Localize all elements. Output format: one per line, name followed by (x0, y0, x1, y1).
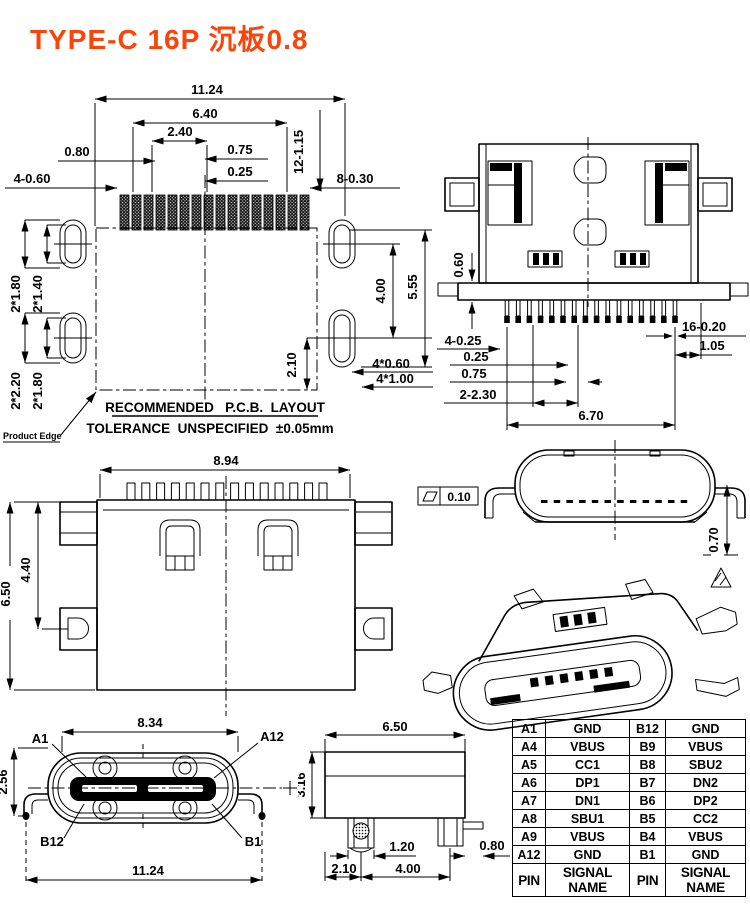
side-pin (463, 822, 483, 829)
mounting-hole-top-left (54, 220, 92, 268)
dim-0-80: 0.80 (479, 838, 504, 853)
table-row: A12 GND B1 GND (513, 846, 746, 864)
latch-spring-bottom (574, 219, 606, 245)
pin-cell: B12 (630, 720, 666, 738)
isometric-view (413, 562, 748, 739)
dim-2-10: 2.10 (284, 352, 299, 377)
flatness-value: 0.10 (447, 490, 471, 504)
pcb-dimensions: 11.24 6.40 2.40 0.80 0.75 0.25 12-1.15 4… (5, 82, 433, 410)
signal-cell: DN1 (546, 792, 630, 810)
signal-cell: GND (546, 720, 630, 738)
pin-label-b1: B1 (245, 834, 262, 849)
flatness-callout: 0.10 (418, 487, 478, 505)
iso-contacts (530, 667, 613, 687)
table-footer-row: PIN SIGNAL NAME PIN SIGNAL NAME (513, 864, 746, 897)
contact-dashes (541, 500, 687, 503)
pin-cell: B1 (630, 846, 666, 864)
side-dimensions-top: 6.50 (325, 719, 465, 752)
dim-5-55: 5.55 (405, 274, 420, 299)
bottom-view-dimensions: 0.60 4-0.25 0.25 0.75 2-2.30 6.70 16-0.2… (437, 252, 746, 430)
dim-4x0-60: 4*0.60 (372, 356, 410, 371)
top-view-dimensions-left: 4.40 6.50 (0, 502, 95, 690)
dim-6-40: 6.40 (192, 106, 217, 121)
pin-cell: A5 (513, 756, 546, 774)
pin-cell: A9 (513, 828, 546, 846)
dim-16-0-20: 16-0.20 (682, 319, 726, 334)
table-row: A4 VBUS B9 VBUS (513, 738, 746, 756)
side-dimensions-left: 3.16 (298, 752, 325, 818)
side-dimensions-bottom: 1.20 0.80 2.10 4.00 (325, 838, 510, 881)
signal-cell: DP1 (546, 774, 630, 792)
table-row: A1 GND B12 GND (513, 720, 746, 738)
dim-8-0-30: 8-0.30 (337, 171, 374, 186)
dim-2-10b: 2.10 (331, 861, 356, 876)
iso-leg-right-bottom (695, 674, 740, 701)
connector-front-shell (485, 440, 745, 540)
dim-4-00b: 4.00 (395, 861, 420, 876)
dim-0-70: 0.70 (706, 527, 721, 552)
dim-8-94: 8.94 (213, 453, 239, 468)
solder-pad-row (120, 195, 309, 230)
signal-cell: VBUS (546, 738, 630, 756)
dim-0-60: 0.60 (451, 252, 466, 277)
pin-cell: A6 (513, 774, 546, 792)
pin-label-b12: B12 (40, 834, 64, 849)
signal-cell: SBU2 (666, 756, 746, 774)
table-row: A7 DN1 B6 DP2 (513, 792, 746, 810)
table-row: A6 DP1 B7 DN2 (513, 774, 746, 792)
dim-2-56: 2.56 (0, 769, 10, 794)
mating-dimensions-top: 8.34 (62, 715, 238, 752)
signal-cell: VBUS (666, 738, 746, 756)
dim-0-80: 0.80 (64, 144, 89, 159)
latch-spring-top (574, 157, 606, 183)
pin-cell: B9 (630, 738, 666, 756)
pin-cell: B8 (630, 756, 666, 774)
dim-2x1-80-bottom: 2*1.80 (30, 372, 45, 410)
dim-2-40: 2.40 (167, 124, 192, 139)
dim-11-24: 11.24 (191, 82, 224, 97)
view-bottom-pins: 0.60 4-0.25 0.25 0.75 2-2.30 6.70 16-0.2… (430, 135, 750, 447)
table-row: A8 SBU1 B5 CC2 (513, 810, 746, 828)
pin-assignment-table: A1 GND B12 GND A4 VBUS B9 VBUS A5 CC1 B8… (512, 719, 746, 897)
signal-cell: CC1 (546, 756, 630, 774)
dim-0-75b: 0.75 (461, 366, 486, 381)
dim-0-25: 0.25 (227, 164, 252, 179)
pin-cell: A1 (513, 720, 546, 738)
pin-cell: A4 (513, 738, 546, 756)
mating-shell (23, 744, 298, 832)
dim-4-00: 4.00 (373, 278, 388, 303)
view-mating-face: 8.34 A1 A12 (0, 712, 302, 912)
view-top: 8.94 (0, 448, 410, 726)
signal-cell: GND (546, 846, 630, 864)
signal-cell: DP2 (666, 792, 746, 810)
mounting-hole-top-right (323, 220, 361, 268)
header-pin: PIN (630, 864, 666, 897)
connector-body-bottom (438, 137, 748, 307)
pin-cell: A7 (513, 792, 546, 810)
pin-cell: B5 (630, 810, 666, 828)
dim-3-16: 3.16 (298, 772, 308, 797)
dim-1-20: 1.20 (389, 839, 414, 854)
pin-cell: A8 (513, 810, 546, 828)
signal-cell: GND (666, 720, 746, 738)
mating-dimensions-bottom: 11.24 (26, 822, 262, 884)
table-row: A5 CC1 B8 SBU2 (513, 756, 746, 774)
dim-2x1-40: 2*1.40 (30, 275, 45, 313)
pin-cell: B6 (630, 792, 666, 810)
dim-6-70: 6.70 (578, 408, 603, 423)
dim-4-40: 4.40 (18, 557, 33, 582)
dim-12-1-15: 12-1.15 (291, 130, 306, 174)
dim-8-34: 8.34 (137, 715, 163, 730)
dim-4-0-60: 4-0.60 (14, 171, 51, 186)
pin-label-a1: A1 (32, 731, 49, 746)
dim-1-05: 1.05 (699, 338, 724, 353)
table-row: A9 VBUS B4 VBUS (513, 828, 746, 846)
pin-row (504, 300, 678, 323)
signal-cell: VBUS (546, 828, 630, 846)
mounting-hole-bottom-left (54, 313, 92, 363)
dim-4-0-25: 4-0.25 (445, 333, 482, 348)
contact-teeth (127, 483, 327, 500)
pin-cell: B7 (630, 774, 666, 792)
dim-6-50b: 6.50 (382, 719, 407, 734)
connector-body-side (325, 752, 483, 852)
pin-cell: B4 (630, 828, 666, 846)
signal-cell: CC2 (666, 810, 746, 828)
note-tolerance: TOLERANCE UNSPECIFIED ±0.05mm (86, 421, 333, 436)
signal-cell: SBU1 (546, 810, 630, 828)
datasheet-page: TYPE-C 16P 沉板0.8 (0, 0, 750, 922)
front-view-dimension: 0.70 (703, 485, 738, 587)
dim-2x2-20: 2*2.20 (8, 372, 23, 410)
connector-body-top (60, 476, 392, 716)
iso-leg-left (422, 670, 453, 696)
signal-cell: DN2 (666, 774, 746, 792)
flatness-icon (423, 492, 437, 501)
pin-cell: A12 (513, 846, 546, 864)
label-product-edge: Product Edge (3, 431, 62, 441)
dim-2x1-80-top: 2*1.80 (8, 275, 23, 313)
signal-cell: GND (666, 846, 746, 864)
header-signal: SIGNAL NAME (546, 864, 630, 897)
view-pcb-layout: 11.24 6.40 2.40 0.80 0.75 0.25 12-1.15 4… (0, 80, 445, 450)
header-signal: SIGNAL NAME (666, 864, 746, 897)
page-title: TYPE-C 16P 沉板0.8 (30, 18, 308, 58)
dim-0-25b: 0.25 (463, 349, 488, 364)
header-pin: PIN (513, 864, 546, 897)
dim-11-24b: 11.24 (132, 863, 165, 878)
signal-cell: VBUS (666, 828, 746, 846)
view-front-and-iso: 0.10 (400, 440, 750, 745)
dim-6-50: 6.50 (0, 581, 13, 606)
note-pcb-layout: RECOMMENDED P.C.B. LAYOUT (105, 400, 326, 415)
dim-4x1-00: 4*1.00 (376, 371, 414, 386)
pin-label-a12: A12 (260, 729, 284, 744)
iso-leg-right-top (695, 605, 738, 634)
dim-2-2-30: 2-2.30 (460, 387, 497, 402)
dim-0-75: 0.75 (227, 142, 252, 157)
view-side: 6.50 3.16 1.20 (298, 718, 516, 910)
solder-peg (353, 823, 369, 839)
